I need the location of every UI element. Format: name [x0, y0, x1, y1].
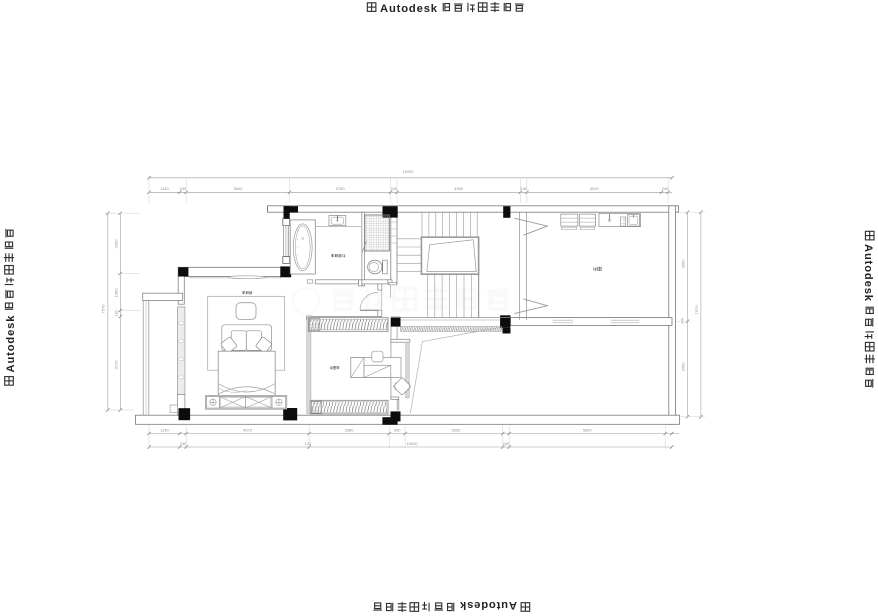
svg-text:4590: 4590	[454, 186, 464, 191]
svg-text:1080: 1080	[114, 288, 119, 298]
svg-text:19430: 19430	[406, 441, 418, 446]
svg-text:Autodesk: Autodesk	[459, 599, 517, 611]
svg-text:2980: 2980	[345, 428, 355, 433]
svg-text:7570: 7570	[694, 305, 699, 315]
svg-text:2300: 2300	[114, 239, 119, 249]
svg-text:5010: 5010	[590, 186, 600, 191]
svg-text:7570: 7570	[101, 304, 106, 314]
svg-text:1140: 1140	[160, 186, 169, 191]
svg-text:Autodesk: Autodesk	[380, 3, 438, 15]
svg-text:3630: 3630	[451, 428, 461, 433]
svg-text:120: 120	[305, 441, 312, 446]
svg-text:5800: 5800	[583, 428, 593, 433]
svg-text:3450: 3450	[681, 362, 686, 372]
svg-text:3170: 3170	[114, 360, 119, 370]
svg-text:4570: 4570	[243, 428, 253, 433]
svg-text:120: 120	[115, 311, 119, 317]
svg-text:3060: 3060	[681, 259, 686, 269]
svg-text:Autodesk: Autodesk	[5, 315, 17, 373]
svg-text:590: 590	[394, 428, 401, 433]
svg-text:19430: 19430	[402, 169, 414, 174]
svg-text:3840: 3840	[233, 186, 243, 191]
svg-text:3760: 3760	[336, 186, 346, 191]
svg-text:1140: 1140	[160, 428, 169, 433]
svg-text:Autodesk: Autodesk	[862, 244, 874, 302]
